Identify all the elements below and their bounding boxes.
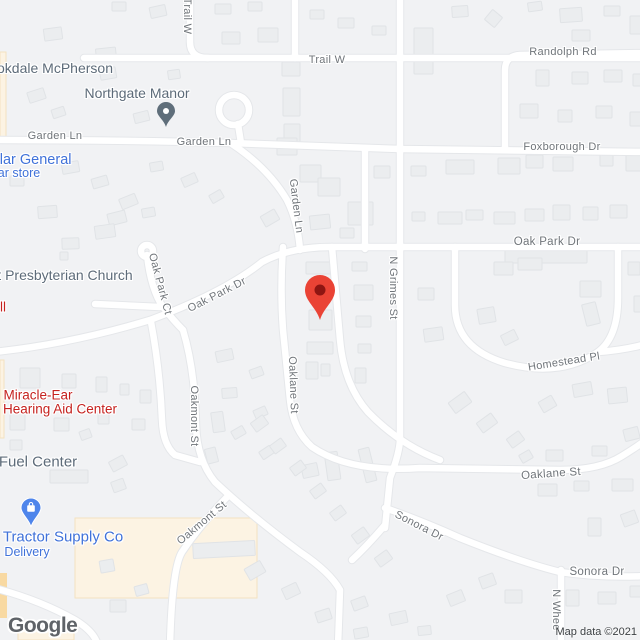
tractor-supply-pin[interactable] bbox=[20, 498, 42, 533]
selected-location-marker[interactable] bbox=[303, 275, 337, 326]
poi-label-shell-partial[interactable]: ll bbox=[0, 300, 6, 315]
street-label-oak-park-dr: Oak Park Dr bbox=[514, 236, 581, 248]
poi-label-presbyterian-church[interactable]: t Presbyterian Church bbox=[0, 267, 133, 283]
map-data-attribution: Map data ©2021 bbox=[556, 626, 638, 638]
poi-label-northgate-manor[interactable]: Northgate Manor bbox=[84, 85, 189, 101]
poi-label-fuel-center[interactable]: Fuel Center bbox=[0, 454, 77, 471]
poi-label-brookdale-mcpherson[interactable]: okdale McPherson bbox=[0, 60, 113, 76]
street-label-trail-w-vertical: Trail W bbox=[181, 0, 193, 34]
street-label-n-grimes-st: N Grimes St bbox=[387, 256, 399, 319]
google-logo[interactable]: Google bbox=[8, 614, 77, 638]
street-label-n-wheeler-st: N Whee bbox=[550, 589, 562, 631]
street-label-garden-ln-west: Garden Ln bbox=[28, 130, 83, 142]
map-canvas[interactable]: Trail WTrail WRandolph RdFoxborough DrGa… bbox=[0, 0, 640, 640]
poi-label-tractor-delivery[interactable]: Delivery bbox=[4, 545, 49, 559]
street-label-sonora-dr: Sonora Dr bbox=[569, 566, 624, 578]
northgate-manor-pin[interactable] bbox=[156, 102, 176, 133]
street-label-oaklane-st-vertical: Oaklane St bbox=[286, 356, 300, 414]
street-label-oakmont-st-vertical: Oakmont St bbox=[188, 385, 200, 446]
street-label-trail-w: Trail W bbox=[309, 54, 346, 66]
poi-label-miracle-ear[interactable]: Miracle-Ear bbox=[3, 388, 72, 403]
street-label-randolph-rd: Randolph Rd bbox=[529, 46, 597, 58]
poi-label-hearing-aid-center[interactable]: Hearing Aid Center bbox=[3, 402, 117, 417]
street-label-garden-ln-mid: Garden Ln bbox=[177, 136, 232, 148]
street-label-foxborough-dr: Foxborough Dr bbox=[523, 141, 600, 153]
poi-label-dollar-store[interactable]: ar store bbox=[0, 166, 40, 180]
